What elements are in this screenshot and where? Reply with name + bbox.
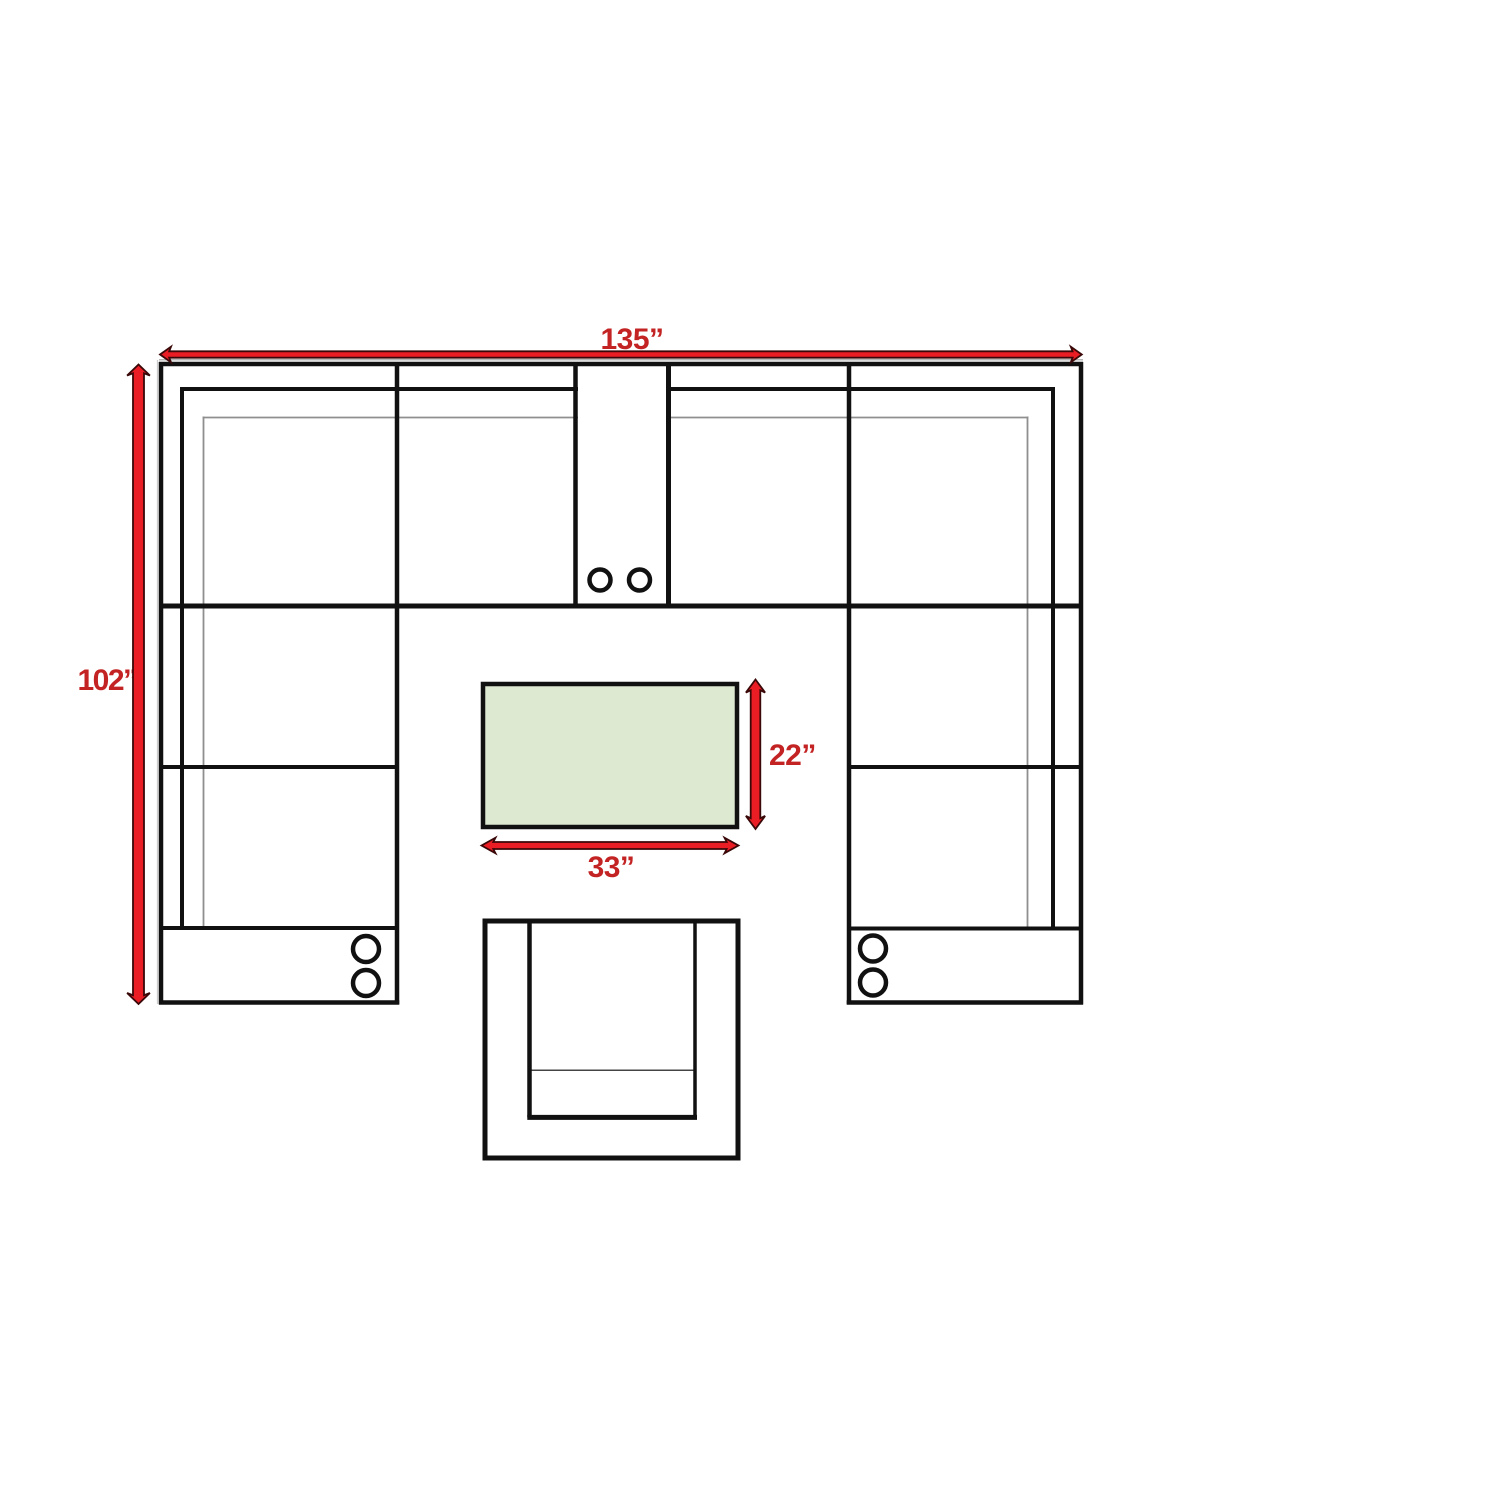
svg-text:22”: 22” <box>769 739 816 772</box>
svg-text:33”: 33” <box>588 851 635 884</box>
svg-text:102”: 102” <box>77 664 136 697</box>
